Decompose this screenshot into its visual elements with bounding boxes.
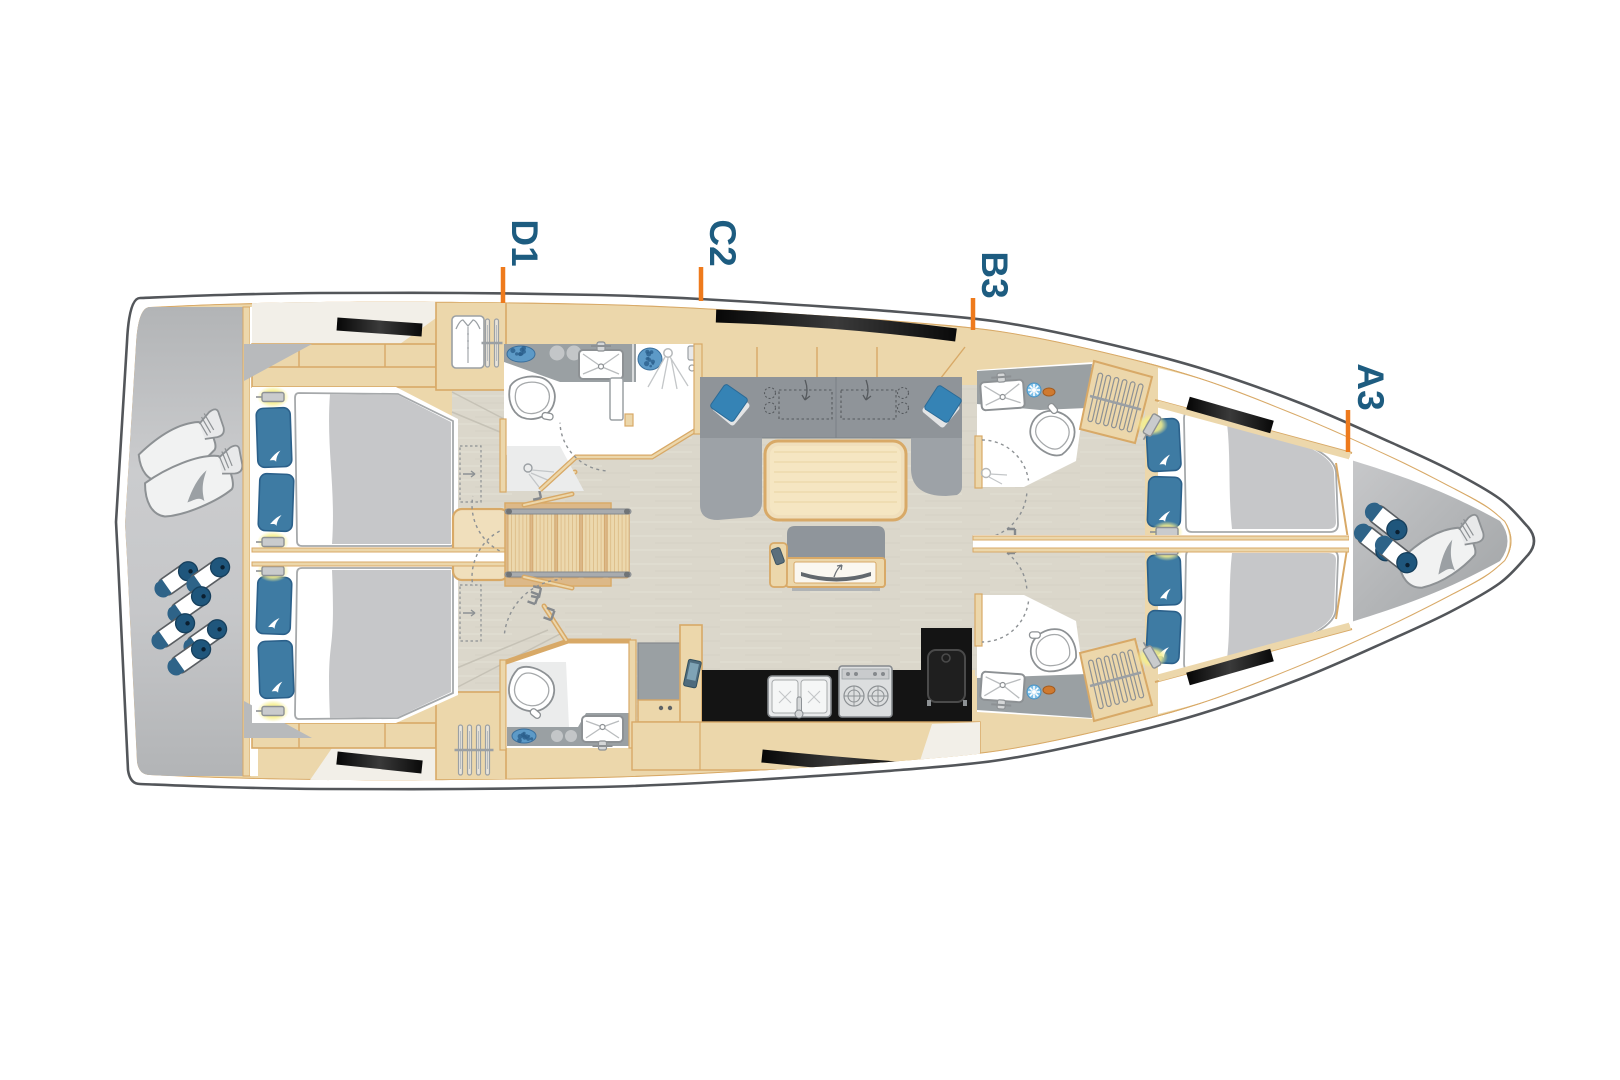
svg-text:C2: C2 (702, 219, 743, 266)
svg-text:D1: D1 (504, 219, 545, 266)
svg-text:A3: A3 (1350, 363, 1391, 410)
svg-text:B3: B3 (974, 251, 1015, 298)
